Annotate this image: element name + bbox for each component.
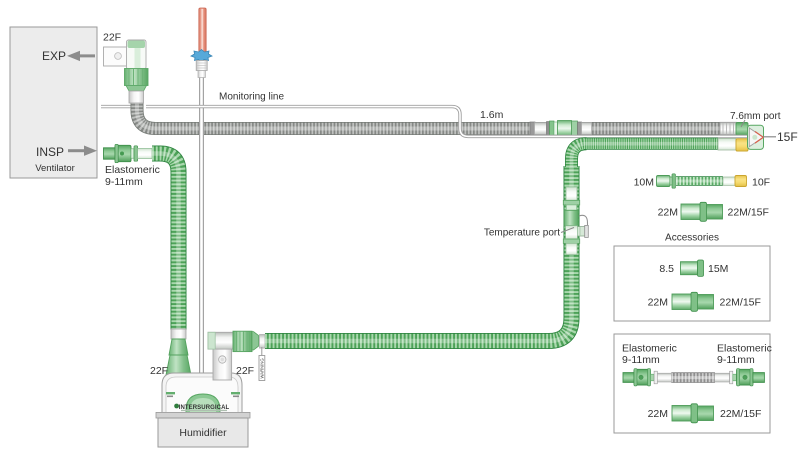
svg-text:Elastomeric: Elastomeric: [622, 343, 677, 355]
svg-text:10M: 10M: [634, 177, 654, 189]
svg-text:22F: 22F: [236, 365, 254, 377]
svg-text:Ventilator: Ventilator: [35, 163, 75, 174]
svg-text:Temperature port: Temperature port: [484, 228, 560, 239]
svg-text:INSP: INSP: [36, 145, 64, 159]
svg-text:22M/15F: 22M/15F: [728, 207, 769, 219]
svg-text:EXP: EXP: [42, 49, 66, 63]
svg-text:Elastomeric: Elastomeric: [717, 343, 772, 355]
svg-text:22M: 22M: [648, 297, 668, 309]
svg-text:Accessories: Accessories: [665, 233, 719, 244]
svg-text:7.6mm port: 7.6mm port: [730, 111, 781, 122]
svg-text:22M: 22M: [658, 207, 678, 219]
svg-text:22F: 22F: [103, 32, 121, 44]
svg-text:WARNING: WARNING: [259, 358, 264, 378]
svg-text:8.5: 8.5: [659, 263, 674, 275]
svg-text:Elastomeric: Elastomeric: [105, 164, 160, 176]
svg-text:22M/15F: 22M/15F: [720, 408, 761, 420]
svg-text:9-11mm: 9-11mm: [622, 354, 660, 366]
svg-text:Monitoring line: Monitoring line: [219, 92, 284, 103]
svg-text:22M/15F: 22M/15F: [720, 297, 761, 309]
svg-text:1.6m: 1.6m: [480, 109, 504, 121]
svg-text:9-11mm: 9-11mm: [717, 354, 755, 366]
svg-text:15M: 15M: [708, 263, 728, 275]
svg-text:22M: 22M: [648, 408, 668, 420]
svg-text:Humidifier: Humidifier: [179, 427, 227, 439]
svg-text:22F: 22F: [150, 365, 168, 377]
svg-text:10F: 10F: [752, 177, 770, 189]
svg-text:9-11mm: 9-11mm: [105, 176, 143, 188]
svg-text:15F: 15F: [777, 130, 798, 144]
